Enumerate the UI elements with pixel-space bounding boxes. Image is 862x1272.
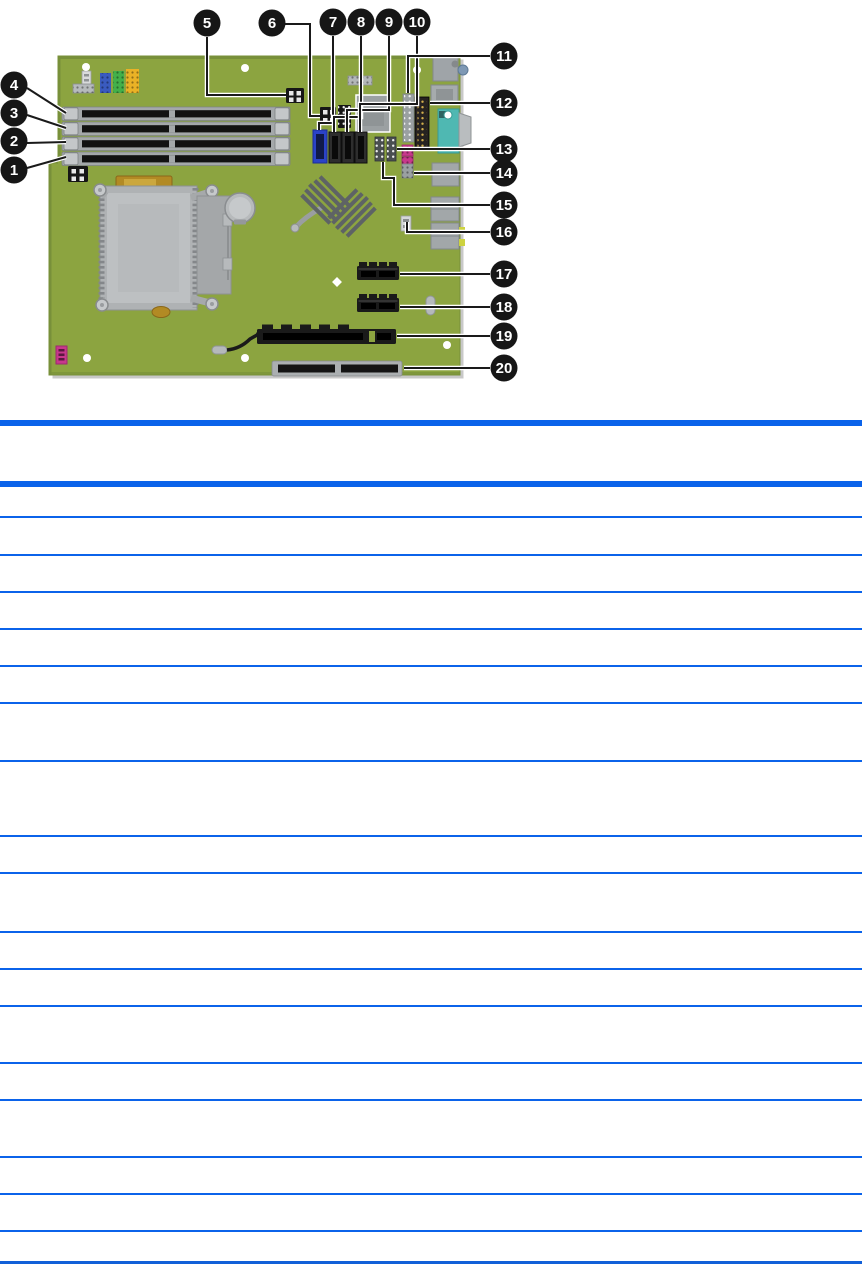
table-header-space [0,426,862,481]
table-row [0,518,862,556]
front-pink-connector [56,346,67,364]
callout-number: 9 [385,14,393,31]
leader-line [27,142,66,143]
table-row [0,1007,862,1064]
table-body [0,487,862,1264]
power-connector [286,88,304,103]
callout-number: 19 [496,328,513,345]
table-row [0,1195,862,1232]
sata-port-black-3 [355,132,367,163]
table-row [0,933,862,970]
pin-header-11 [403,94,414,142]
table-row [0,1232,862,1264]
sata-ports [313,130,367,163]
callout-2: 2 [1,128,67,155]
dimm-slot-4 [62,107,290,121]
callout-number: 18 [496,299,513,316]
pin-header-15 [375,137,384,161]
document-page: 1234567891011121314151617181920 [0,0,862,1272]
sata-port-blue [313,130,327,163]
dimm-slot-3 [62,122,290,136]
table-row [0,593,862,630]
table-row [0,1064,862,1101]
connections-table [0,420,862,1264]
callout-number: 2 [10,133,18,150]
sata-port-black-2 [342,132,354,163]
pin-header-13 [387,137,396,161]
gold-capacitor [152,307,170,318]
table-row [0,762,862,837]
pin-header-14 [402,164,413,178]
table-row [0,837,862,874]
callout-number: 16 [496,224,513,241]
callout-number: 17 [496,266,513,283]
table-row [0,1101,862,1158]
callout-number: 10 [409,14,426,31]
callout-number: 8 [357,14,365,31]
table-row [0,1158,862,1195]
table-row [0,667,862,704]
callout-number: 15 [496,197,513,214]
table-row [0,630,862,667]
table-row [0,970,862,1007]
callout-number: 20 [496,360,513,377]
sata-port-black-1 [329,132,341,163]
callout-number: 4 [10,77,19,94]
pci-slot [272,361,402,376]
callout-number: 6 [268,15,276,32]
usb-stack-b [431,197,459,221]
callout-number: 12 [496,95,513,112]
callout-number: 3 [10,105,18,122]
callout-number: 5 [203,15,211,32]
table-row [0,874,862,933]
system-board-figure: 1234567891011121314151617181920 [0,0,862,420]
table-row [0,487,862,518]
vga-connector [438,109,471,153]
table-row [0,704,862,762]
table-row [0,556,862,593]
callout-number: 13 [496,141,513,158]
dimm-slot-2 [62,137,290,151]
callout-3: 3 [1,100,67,129]
dimm-slot-1 [62,152,290,166]
callout-number: 11 [496,48,512,65]
callout-number: 7 [329,14,337,31]
aux-power-connector [68,166,88,182]
callout-number: 1 [10,162,18,179]
callout-number: 14 [496,165,513,182]
